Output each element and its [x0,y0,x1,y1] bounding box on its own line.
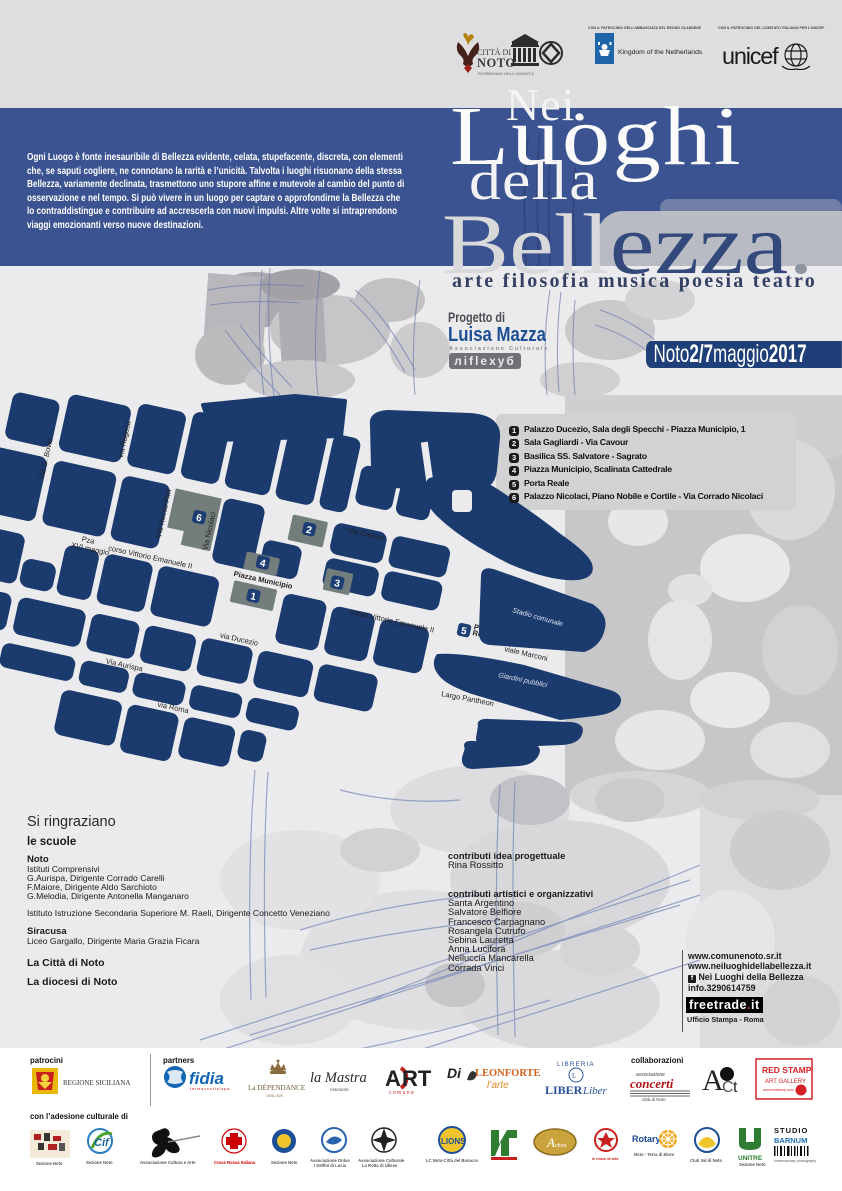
svg-text:l’arte: l’arte [487,1080,509,1091]
svg-text:BARNUM: BARNUM [774,1136,807,1145]
svg-text:unicef: unicef [722,43,779,69]
svg-text:c o m u n e: c o m u n e [389,1090,414,1096]
svg-text:A: A [385,1066,401,1091]
svg-text:A: A [546,1135,555,1150]
svg-text:Cif: Cif [94,1137,110,1149]
svg-text:UNITRE: UNITRE [738,1155,763,1162]
svg-text:ristorante: ristorante [330,1087,349,1092]
svg-text:LIONS: LIONS [441,1137,466,1146]
svg-text:STUDIO: STUDIO [774,1126,808,1135]
svg-text:REGIONE SICILIANA: REGIONE SICILIANA [63,1079,130,1087]
svg-text:La Rotta di Ulisse: La Rotta di Ulisse [362,1163,398,1168]
svg-text:concerti: concerti [630,1076,674,1091]
svg-text:LIBRERIA: LIBRERIA [557,1061,595,1068]
svg-text:LIBER: LIBER [545,1083,583,1097]
svg-text:www.redstamp.com: www.redstamp.com [763,1088,794,1092]
svg-text:Noto - Terra di Eloro: Noto - Terra di Eloro [634,1152,675,1157]
svg-text:t: t [733,1079,738,1096]
svg-text:città di Noto: città di Noto [642,1097,666,1102]
svg-text:contemporary photography: contemporary photography [774,1159,816,1163]
svg-text:fidia: fidia [189,1069,224,1088]
svg-text:Di: Di [447,1065,462,1081]
svg-text:LEONFORTE: LEONFORTE [475,1068,540,1079]
svg-text:L: L [572,1072,576,1080]
svg-text:CON IL PATROCINIO DEL COMITATO: CON IL PATROCINIO DEL COMITATO ITALIANO … [718,26,825,30]
svg-text:ART GALLERY: ART GALLERY [765,1079,806,1085]
svg-text:Liber: Liber [582,1085,608,1097]
svg-text:NOTO: NOTO [477,56,516,70]
svg-text:Rotary: Rotary [632,1134,661,1144]
svg-text:LC Noto-Città del Barocco: LC Noto-Città del Barocco [426,1158,479,1163]
svg-text:f a r m a c e u t i c i s.p.: f a r m a c e u t i c i s.p.a. [190,1087,230,1091]
svg-text:Sezione Noto: Sezione Noto [739,1162,766,1167]
svg-text:la Mastra: la Mastra [310,1070,367,1086]
svg-text:C: C [722,1079,734,1096]
svg-text:I Delfini di Lucia: I Delfini di Lucia [314,1163,347,1168]
svg-text:Kingdom of the Netherlands: Kingdom of the Netherlands [618,49,703,56]
svg-text:PATRIMONIO DELL’UMANITÀ: PATRIMONIO DELL’UMANITÀ [478,71,534,76]
svg-text:Club Val di Noto: Club Val di Noto [690,1158,723,1163]
svg-text:Croce Rossa Italiana: Croce Rossa Italiana [214,1160,256,1165]
svg-text:nfora: nfora [555,1143,567,1149]
svg-text:A: A [702,1064,724,1097]
svg-text:Sezione Noto: Sezione Noto [86,1160,113,1165]
svg-text:le muse di arte: le muse di arte [592,1157,619,1161]
svg-text:1905-1925: 1905-1925 [266,1094,283,1098]
svg-text:CON IL PATROCINIO DELL’AMBASCI: CON IL PATROCINIO DELL’AMBASCIATA DEL RE… [588,26,702,30]
svg-text:Sezione Noto: Sezione Noto [36,1161,63,1166]
svg-text:Sezione Noto: Sezione Noto [271,1160,298,1165]
svg-text:RED STAMP: RED STAMP [762,1065,812,1075]
svg-text:Associazione Cultura e Arte: Associazione Cultura e Arte [140,1160,196,1165]
svg-text:CITTÀ DI: CITTÀ DI [477,47,511,57]
svg-text:La DÉPENDANCE: La DÉPENDANCE [248,1082,306,1092]
svg-text:RT: RT [402,1066,432,1091]
